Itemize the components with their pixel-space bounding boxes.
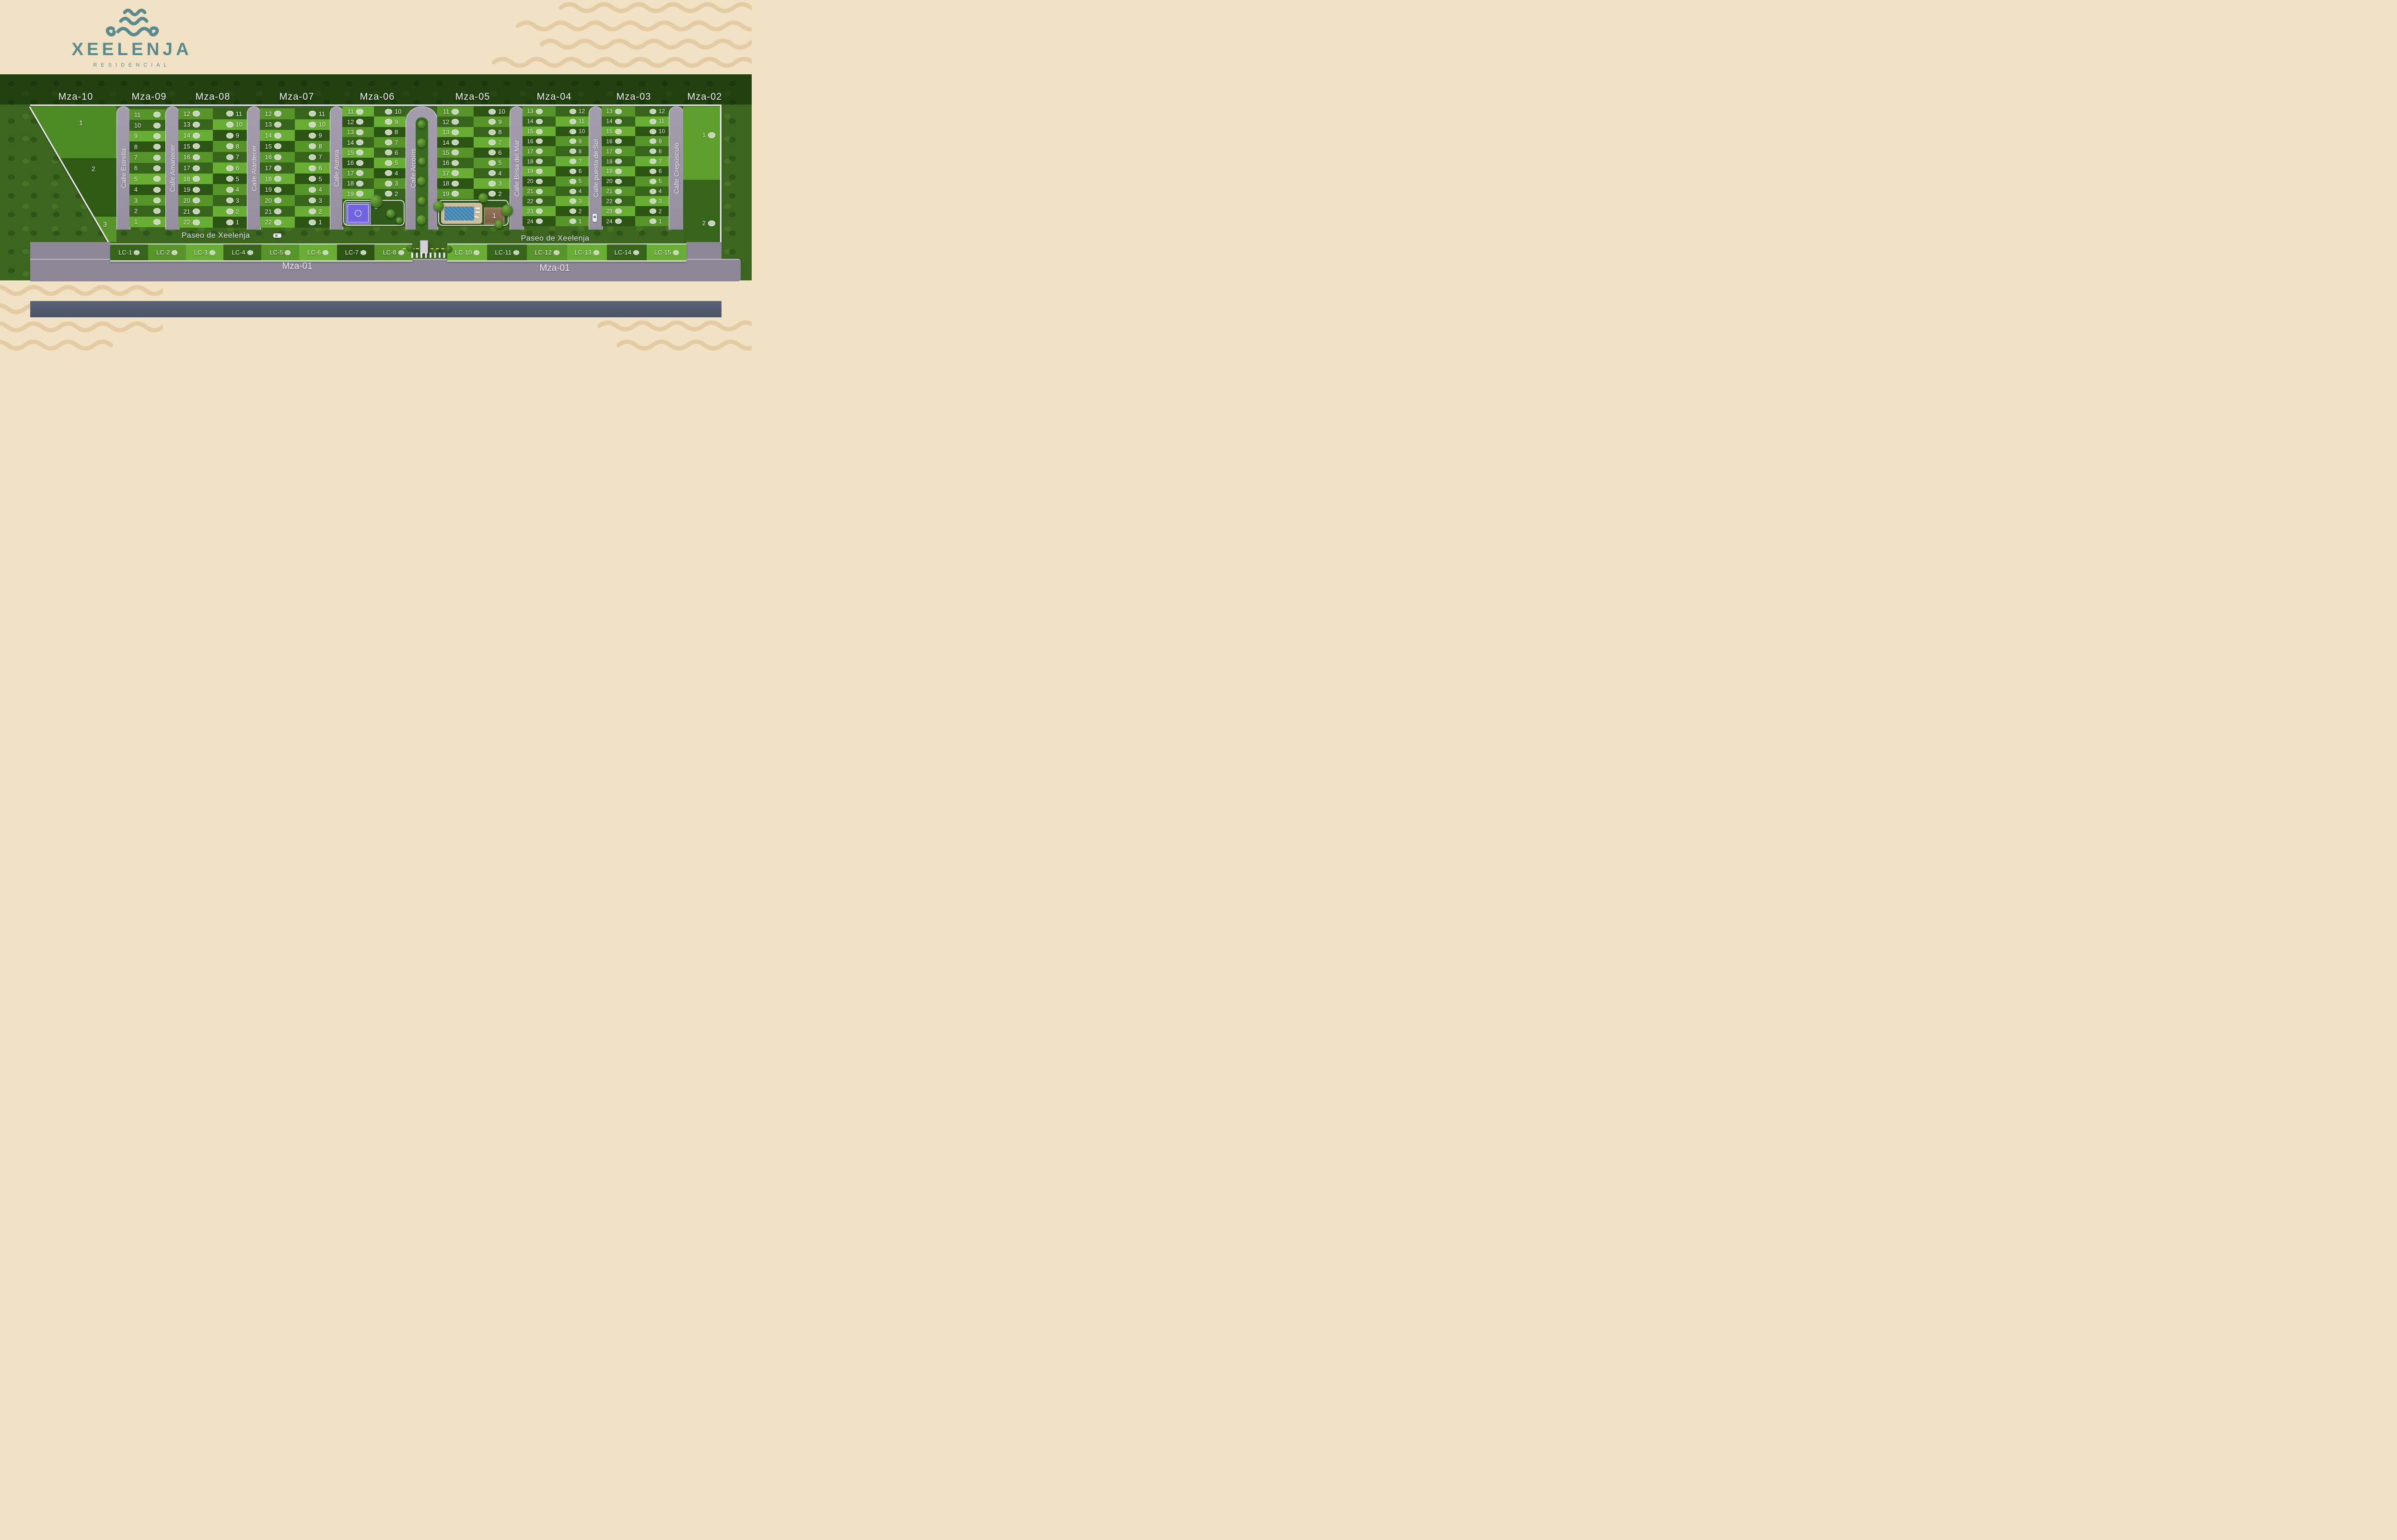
lot-status-dot — [650, 149, 656, 154]
lot-row[interactable]: 8 — [129, 141, 165, 152]
lot-number: 22 — [526, 198, 534, 205]
lot-row[interactable]: 20 — [602, 176, 635, 186]
lot-column: 121110987654321 — [635, 106, 669, 226]
lot-status-dot — [385, 191, 392, 197]
lot-row[interactable]: 8 — [295, 141, 330, 152]
lot-row[interactable]: 19 — [523, 166, 556, 176]
lot-status-dot — [650, 129, 656, 134]
lot-row[interactable]: 10 — [374, 106, 406, 116]
lot-status-dot — [226, 208, 233, 214]
lot-number: 17 — [526, 148, 534, 155]
lot-row[interactable]: 5 — [474, 158, 510, 168]
lot-row[interactable]: 7 — [129, 152, 165, 162]
lot-status-dot — [274, 143, 281, 149]
lot-number: 17 — [441, 170, 449, 177]
lot-row[interactable]: 3 — [635, 196, 669, 206]
lot-row[interactable]: 8 — [213, 141, 247, 152]
tree-icon — [396, 217, 403, 224]
lot-row[interactable]: 14 — [523, 116, 556, 127]
lot-row[interactable]: 12 — [635, 106, 669, 116]
lot-row[interactable]: 8 — [374, 127, 406, 137]
lot-row[interactable]: 11 — [556, 116, 589, 127]
lot-status-dot — [309, 176, 316, 182]
lot-row[interactable]: 11 — [129, 109, 165, 120]
lot-status-dot — [452, 129, 459, 135]
lot-status-dot — [356, 191, 363, 197]
lot-status-dot — [226, 220, 233, 225]
mza06-park-area[interactable]: 1 — [342, 199, 406, 227]
lot-row[interactable]: 15 — [178, 141, 213, 152]
lot-row[interactable]: 15 — [342, 148, 374, 158]
lot-number: 4 — [318, 186, 326, 193]
lot-row[interactable]: 7 — [295, 152, 330, 163]
lot-number: 19 — [441, 190, 449, 197]
lot-row[interactable]: 6 — [374, 148, 406, 158]
lot-number: 18 — [264, 175, 272, 183]
lot-status-dot — [193, 143, 200, 149]
lot-row[interactable]: 9 — [635, 136, 669, 146]
lot-row[interactable]: 3 — [374, 178, 406, 188]
lot-row[interactable]: 10 — [213, 119, 247, 130]
lot-number: 12 — [441, 118, 449, 126]
lot-row[interactable]: 22 — [602, 196, 635, 206]
lot-row[interactable]: 10 — [295, 119, 330, 130]
lot-row[interactable]: 7 — [556, 156, 589, 166]
lot-number: 8 — [318, 143, 326, 150]
lot-row[interactable]: 18 — [178, 174, 213, 185]
lot-row[interactable]: 24 — [523, 216, 556, 226]
lot-row[interactable]: 12 — [260, 108, 295, 119]
lot-status-dot — [615, 189, 622, 194]
lot-status-dot — [226, 197, 233, 203]
lot-number: 14 — [264, 132, 272, 139]
commercial-lot-lc-5[interactable]: LC-5 — [261, 244, 299, 260]
lot-row[interactable]: 4 — [129, 185, 165, 195]
lot-row[interactable]: 16 — [523, 136, 556, 146]
lot-row[interactable]: 18 — [523, 156, 556, 166]
lot-status-dot — [356, 181, 363, 186]
lot-row[interactable]: 18 — [602, 156, 635, 166]
lot-row[interactable]: 9 — [213, 130, 247, 141]
lot-row[interactable]: 19 — [602, 166, 635, 176]
lot-status-dot — [570, 219, 576, 224]
lot-row[interactable]: 22 — [523, 196, 556, 206]
lot-number: 7 — [134, 154, 142, 161]
lot-number: 18 — [182, 175, 190, 183]
lot-status-dot — [134, 250, 140, 255]
lot-status-dot — [615, 179, 622, 184]
lot-row[interactable]: 1 — [213, 217, 247, 228]
lot-status-dot — [274, 133, 281, 139]
lot-status-dot — [489, 129, 496, 135]
road-corner-left — [30, 242, 110, 261]
lot-number: 16 — [182, 153, 190, 161]
lot-column: 121110987654321 — [556, 106, 589, 226]
commercial-lot-lc-6[interactable]: LC-6 — [299, 244, 337, 260]
lot-row[interactable]: 11 — [437, 106, 474, 116]
lot-row[interactable]: 5 — [129, 174, 165, 184]
lot-row[interactable]: 10 — [474, 106, 510, 116]
lot-status-dot — [309, 208, 316, 214]
lot-status-dot — [633, 250, 639, 255]
lot-status-dot — [274, 122, 281, 127]
lot-status-dot — [452, 191, 459, 197]
commercial-lot-label: LC-2 — [156, 249, 170, 256]
lot-row[interactable]: 15 — [523, 127, 556, 137]
lot-row[interactable]: 16 — [178, 152, 213, 163]
commercial-lot-lc-15[interactable]: LC-15 — [647, 244, 687, 260]
lot-row[interactable]: 17 — [178, 162, 213, 174]
lot-row[interactable]: 6 — [474, 148, 510, 158]
lot-row[interactable]: 19 — [437, 189, 474, 199]
lot-number: 8 — [659, 148, 666, 155]
lot-row[interactable]: 11 — [635, 116, 669, 127]
lot-row[interactable]: 11 — [213, 108, 247, 119]
lot-row[interactable]: 6 — [635, 166, 669, 176]
road-corner-right — [687, 242, 721, 261]
lot-status-dot — [309, 154, 316, 160]
lot-row[interactable]: 5 — [635, 176, 669, 186]
lot-row[interactable]: 3 — [295, 195, 330, 206]
commercial-lot-lc-10[interactable]: LC-10 — [447, 244, 487, 260]
block-label-mza-07: Mza-07 — [279, 92, 314, 103]
lot-number: 8 — [395, 128, 403, 136]
lot-row[interactable]: 9 — [474, 116, 510, 127]
lot-row[interactable]: 2 — [129, 206, 165, 216]
lot-row[interactable]: 5 — [374, 158, 406, 168]
lot-status-dot — [385, 150, 392, 155]
lot-row[interactable]: 11 — [342, 106, 374, 116]
lot-status-dot — [356, 119, 363, 125]
lot-row[interactable]: 6 — [295, 162, 330, 174]
lot-row[interactable]: 9 — [556, 136, 589, 146]
lot-row[interactable]: 8 — [635, 146, 669, 156]
lot-number: 18 — [346, 180, 354, 187]
block-mza-02[interactable]: 1 2 — [683, 106, 720, 243]
lot-row[interactable]: 6 — [129, 163, 165, 174]
commercial-lot-label: LC-12 — [535, 249, 551, 256]
lot-number: 21 — [264, 208, 272, 215]
lot-row[interactable]: 14 — [602, 116, 635, 127]
commercial-strip-left: LC-1LC-2LC-3LC-4LC-5LC-6LC-7LC-8 — [110, 243, 412, 262]
lot-number: 3 — [659, 198, 666, 205]
lot-row[interactable]: 7 — [635, 156, 669, 166]
lot-row[interactable]: 10 — [635, 127, 669, 137]
lot-row[interactable]: 13 — [342, 127, 374, 137]
lot-number: 4 — [236, 186, 244, 193]
commercial-lot-lc-4[interactable]: LC-4 — [223, 244, 261, 260]
lot-status-dot — [570, 208, 576, 214]
lot-status-dot — [489, 181, 496, 186]
lot-number: 1 — [236, 219, 244, 226]
lot-row[interactable]: 13 — [602, 106, 635, 116]
lot-number: 18 — [441, 180, 449, 187]
lot-row[interactable]: 12 — [178, 108, 213, 119]
lot-row[interactable]: 21 — [260, 206, 295, 217]
lot-number: 2 — [92, 165, 95, 173]
lot-status-dot — [615, 109, 622, 114]
lot-row[interactable]: 14 — [342, 137, 374, 147]
lot-number: 4 — [395, 170, 403, 177]
lot-number: 18 — [526, 158, 534, 165]
lot-row[interactable]: 16 — [437, 158, 474, 168]
lot-number: 10 — [579, 128, 586, 135]
lot-row[interactable]: 21 — [602, 186, 635, 197]
lot-number: 4 — [134, 186, 142, 193]
street-calle-estrella: Calle Estrella — [116, 106, 130, 230]
lot-number: 7 — [498, 139, 506, 146]
lot-number: 2 — [134, 208, 142, 215]
lot-column: 131415161718192021222324 — [602, 106, 635, 226]
lot-status-dot — [536, 149, 543, 154]
lot-number: 14 — [441, 139, 449, 146]
lot-status-dot — [650, 119, 656, 124]
lot-status-dot — [385, 129, 392, 135]
lot-number: 2 — [395, 190, 403, 197]
lot-row[interactable]: 3 — [556, 196, 589, 206]
lot-status-dot — [361, 250, 366, 255]
street-calle-arcoiris: Calle Arcoíris — [406, 106, 438, 230]
lot-row[interactable]: 4 — [635, 186, 669, 197]
lot-status-dot — [452, 160, 459, 166]
lot-row[interactable]: 4 — [556, 186, 589, 197]
lot-row[interactable]: 13 — [523, 106, 556, 116]
lot-row[interactable]: 10 — [556, 127, 589, 137]
lot-number: 12 — [182, 110, 190, 117]
lot-row[interactable]: 16 — [602, 136, 635, 146]
lot-row[interactable]: 4 — [295, 184, 330, 195]
lot-row[interactable]: 1 — [702, 131, 715, 139]
block-mza-10[interactable]: 1 2 3 — [30, 106, 116, 242]
lot-row[interactable]: 17 — [260, 162, 295, 174]
paseo-de-xeelenja-road — [30, 301, 721, 317]
lot-number: 15 — [526, 128, 534, 135]
lot-row[interactable]: 18 — [260, 174, 295, 185]
lot-number: 10 — [395, 108, 403, 115]
basketball-court — [346, 202, 371, 224]
commercial-lot-lc-14[interactable]: LC-14 — [607, 244, 647, 260]
lot-status-dot — [193, 154, 200, 160]
lot-row[interactable]: 11 — [295, 108, 330, 119]
lot-row[interactable]: 23 — [523, 206, 556, 216]
lot-row[interactable]: 3 — [213, 195, 247, 206]
block-label-mza-06: Mza-06 — [360, 92, 395, 103]
lot-row[interactable]: 17 — [437, 168, 474, 178]
lot-status-dot — [323, 250, 328, 255]
lot-column: 111213141516171819 — [437, 106, 474, 199]
lot-row[interactable]: 22 — [260, 217, 295, 228]
lot-status-dot — [489, 150, 496, 155]
lot-row[interactable]: 23 — [602, 206, 635, 216]
lot-number: 12 — [264, 110, 272, 117]
lot-row[interactable]: 16 — [342, 158, 374, 168]
lot-status-dot — [570, 129, 576, 134]
lot-number: 7 — [395, 139, 403, 146]
lot-status-dot — [570, 169, 576, 174]
tree-icon — [495, 220, 503, 229]
lot-row[interactable]: 22 — [178, 217, 213, 228]
lot-number: 24 — [605, 218, 613, 225]
lot-row[interactable]: 3 — [129, 195, 165, 206]
lot-row[interactable]: 2 — [213, 206, 247, 217]
commercial-lot-lc-7[interactable]: LC-7 — [337, 244, 375, 260]
lot-row[interactable]: 19 — [342, 189, 374, 199]
lot-status-dot — [673, 250, 679, 255]
lot-status-dot — [536, 189, 543, 194]
lot-row[interactable]: 2 — [556, 206, 589, 216]
lot-status-dot — [309, 143, 316, 149]
lot-status-dot — [593, 250, 599, 255]
lot-column: 131415161718192021222324 — [523, 106, 556, 226]
commercial-lot-label: LC-13 — [574, 249, 591, 256]
tree-icon — [433, 201, 444, 211]
road-label-paseo-right: Paseo de Xeelenja — [521, 234, 590, 243]
commercial-lot-lc-11[interactable]: LC-11 — [487, 244, 527, 260]
commercial-lot-lc-3[interactable]: LC-3 — [186, 244, 224, 260]
lot-row[interactable]: 4 — [213, 184, 247, 195]
lot-status-dot — [615, 169, 622, 174]
lot-row[interactable]: 5 — [295, 174, 330, 185]
commercial-lot-label: LC-14 — [615, 249, 631, 256]
lot-status-dot — [356, 129, 363, 135]
lot-number: 13 — [441, 128, 449, 136]
lot-number: 2 — [659, 208, 666, 215]
lot-status-dot — [615, 139, 622, 144]
street-calle-aurora: Calle Aurora — [330, 106, 343, 230]
lot-row[interactable]: 10 — [129, 120, 165, 130]
lot-row[interactable]: 5 — [213, 174, 247, 185]
lot-row[interactable]: 14 — [178, 130, 213, 141]
block-label-mza-10: Mza-10 — [58, 92, 93, 103]
mza05-amenity-area[interactable]: 1 — [437, 199, 510, 227]
lot-row[interactable]: 7 — [213, 152, 247, 163]
lot-row[interactable]: 15 — [260, 141, 295, 152]
lot-row[interactable]: 15 — [437, 148, 474, 158]
lot-row[interactable]: 19 — [260, 184, 295, 195]
lot-row[interactable]: 12 — [556, 106, 589, 116]
lot-row[interactable]: 8 — [474, 127, 510, 137]
lot-status-dot — [226, 176, 233, 182]
lot-number: 8 — [498, 128, 506, 136]
lot-number: 7 — [579, 158, 586, 165]
lot-row[interactable]: 1 — [295, 217, 330, 228]
lot-number: 5 — [236, 175, 244, 183]
block-label-mza-09: Mza-09 — [132, 92, 167, 103]
lot-status-dot — [536, 139, 543, 144]
lot-status-dot — [153, 165, 161, 171]
lot-row[interactable]: 18 — [342, 178, 374, 188]
block-label-mza-04: Mza-04 — [537, 92, 572, 103]
lot-number: 11 — [579, 118, 586, 125]
lot-row[interactable]: 17 — [523, 146, 556, 156]
lot-row[interactable]: 9 — [295, 130, 330, 141]
lot-row[interactable]: 12 — [437, 116, 474, 127]
lot-number: 11 — [659, 118, 666, 125]
lot-row[interactable]: 7 — [374, 137, 406, 147]
lot-status-dot — [309, 165, 316, 171]
lot-number: 19 — [526, 168, 534, 174]
lot-status-dot — [650, 139, 656, 144]
commercial-lot-lc-12[interactable]: LC-12 — [527, 244, 567, 260]
lot-row[interactable]: 13 — [437, 127, 474, 137]
lot-number: 11 — [318, 110, 326, 117]
lot-row[interactable]: 7 — [474, 137, 510, 147]
lot-number: 15 — [182, 143, 190, 150]
lot-number: 16 — [441, 159, 449, 166]
palm-icon — [407, 244, 414, 252]
tree-icon — [418, 158, 426, 165]
lot-row[interactable]: 24 — [602, 216, 635, 226]
lot-row[interactable]: 17 — [342, 168, 374, 178]
lot-status-dot — [193, 220, 200, 225]
lot-row[interactable]: 21 — [523, 186, 556, 197]
lot-row[interactable]: 1 — [556, 216, 589, 226]
lot-number: 15 — [605, 128, 613, 135]
lot-row[interactable]: 1 — [129, 217, 165, 227]
lot-number: 3 — [134, 197, 142, 204]
lot-row[interactable]: 18 — [437, 178, 474, 188]
lot-row[interactable]: 6 — [556, 166, 589, 176]
block-label-mza-01-left: Mza-01 — [282, 261, 312, 272]
north-boundary-line — [30, 104, 721, 106]
commercial-lot-label: LC-3 — [194, 249, 208, 256]
lot-status-dot — [153, 133, 161, 139]
lot-row[interactable]: 17 — [602, 146, 635, 156]
lot-row[interactable]: 19 — [178, 184, 213, 195]
tree-icon — [418, 197, 426, 205]
lot-status-dot — [193, 111, 200, 116]
commercial-lot-lc-2[interactable]: LC-2 — [148, 244, 186, 260]
lot-row[interactable]: 20 — [178, 195, 213, 206]
commercial-lot-lc-1[interactable]: LC-1 — [110, 244, 148, 260]
logo-title: XEELENJA — [58, 39, 206, 59]
lot-row[interactable]: 5 — [556, 176, 589, 186]
lot-row[interactable]: 1 — [635, 216, 669, 226]
lot-row[interactable]: 2 — [295, 206, 330, 217]
lot-row[interactable]: 20 — [260, 195, 295, 206]
lot-number: 23 — [605, 208, 613, 215]
pool-deck — [441, 203, 482, 224]
lot-row[interactable]: 8 — [556, 146, 589, 156]
lot-number: 21 — [182, 208, 190, 215]
lot-row[interactable]: 13 — [260, 119, 295, 130]
bottom-road — [30, 259, 741, 281]
lot-number: 13 — [526, 108, 534, 115]
lot-number: 12 — [346, 118, 354, 126]
lot-row[interactable]: 6 — [213, 162, 247, 174]
lot-row[interactable]: 14 — [437, 137, 474, 147]
lot-status-dot — [385, 109, 392, 115]
commercial-lot-lc-13[interactable]: LC-13 — [567, 244, 607, 260]
lot-row[interactable]: 15 — [602, 127, 635, 137]
lot-row[interactable]: 4 — [374, 168, 406, 178]
lot-row[interactable]: 2 — [702, 220, 715, 227]
lot-row[interactable]: 9 — [374, 116, 406, 127]
lot-row[interactable]: 16 — [260, 152, 295, 163]
lot-row[interactable]: 14 — [260, 130, 295, 141]
block-mza-08: 12131415161718192021221110987654321 — [178, 108, 247, 228]
lot-row[interactable]: 20 — [523, 176, 556, 186]
lot-row[interactable]: 13 — [178, 119, 213, 130]
lot-row[interactable]: 3 — [474, 178, 510, 188]
lot-row[interactable]: 9 — [129, 131, 165, 141]
lot-row[interactable]: 12 — [342, 116, 374, 127]
lot-row[interactable]: 21 — [178, 206, 213, 217]
lot-row[interactable]: 2 — [635, 206, 669, 216]
commercial-lot-label: LC-8 — [383, 249, 396, 256]
lot-status-dot — [570, 119, 576, 124]
lot-row[interactable]: 4 — [474, 168, 510, 178]
